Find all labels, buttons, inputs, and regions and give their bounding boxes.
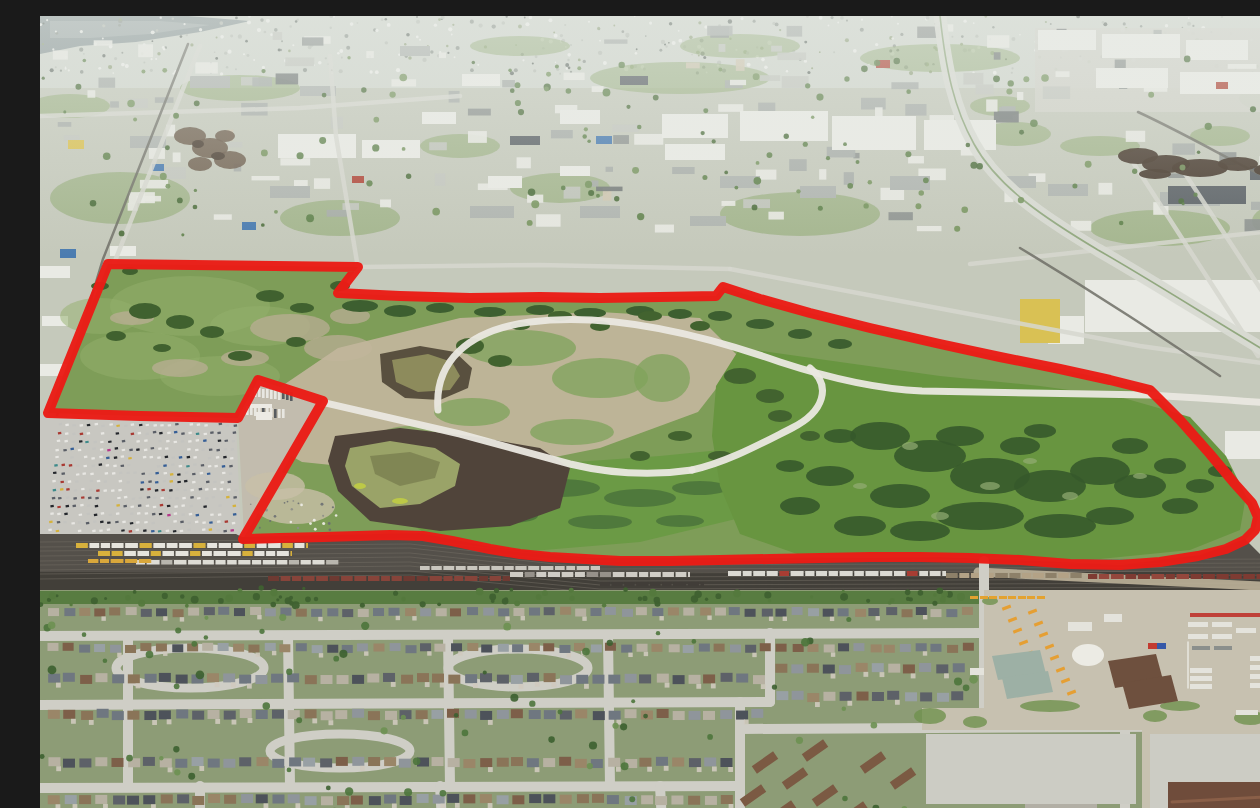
red-trim-stripe <box>1190 613 1260 617</box>
atmospheric-haze <box>40 16 1260 256</box>
brown-building-se <box>1168 782 1260 808</box>
quonset-hut <box>1072 644 1104 666</box>
blue-container <box>1157 643 1166 649</box>
aerial-photograph <box>40 16 1260 808</box>
red-container <box>1148 643 1157 649</box>
gray-building <box>1025 804 1097 808</box>
aerial-photo-figure <box>40 16 1260 808</box>
